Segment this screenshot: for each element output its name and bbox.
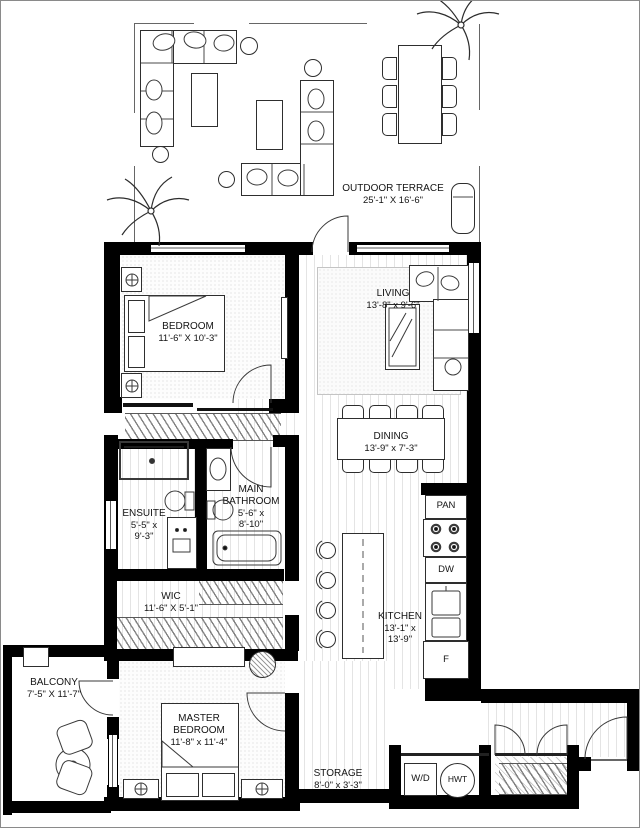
room-name: LIVING: [351, 288, 435, 300]
living-sofa: [433, 299, 469, 391]
wall: [104, 569, 284, 581]
room-label-balcony: BALCONY 7'-5" X 11'-7": [7, 677, 101, 700]
wall: [273, 435, 299, 447]
dining-chair: [396, 459, 418, 473]
outdoor-chair: [382, 57, 397, 80]
room-name: BALCONY: [7, 677, 101, 689]
terrace-coffee-table: [191, 73, 218, 127]
closet-sliding-door: [123, 403, 193, 407]
wall: [285, 447, 299, 581]
palm-plant: [107, 177, 189, 246]
nightstand: [121, 267, 142, 292]
dining-chair: [369, 405, 391, 419]
window-master-bedroom: [108, 735, 118, 787]
terrace-boundary-line: [134, 23, 194, 24]
room-dims: 8'-0" x 3'-3": [287, 780, 389, 791]
terrace-boundary-line: [134, 166, 135, 242]
closet-hangers: [125, 413, 281, 441]
terrace-sectional-sofa: [140, 30, 174, 147]
terrace-planter: [240, 37, 258, 55]
room-label-living: LIVING 13'-8" x 9'-6": [351, 288, 435, 311]
outdoor-dining-table: [398, 45, 442, 144]
entry-door-sill: [591, 759, 627, 761]
outdoor-chair: [442, 113, 457, 136]
coat-closet-hangers: [499, 763, 567, 795]
hot-water-tank-label: HWT: [440, 774, 475, 784]
wall: [104, 397, 122, 413]
room-label-ensuite: ENSUITE 5'-5" x 9'-3": [110, 508, 178, 542]
closet-sliding-door: [197, 408, 273, 411]
bar-stool: [319, 602, 336, 619]
dining-chair: [396, 405, 418, 419]
room-name: DINING: [339, 431, 443, 443]
balcony-furniture: [55, 718, 94, 796]
closet-front-line: [495, 753, 567, 756]
wall: [107, 661, 119, 679]
terrace-boundary-line: [479, 24, 480, 110]
outdoor-chair: [442, 57, 457, 80]
ceiling-fan: [249, 651, 276, 678]
room-dims: 5'-5" x 9'-3": [122, 520, 166, 542]
terrace-boundary-line: [249, 23, 367, 24]
wall: [421, 483, 467, 495]
lounge-chair: [451, 183, 475, 234]
pantry-label: PAN: [425, 500, 467, 511]
room-dims: 11'-6" X 10'-3": [135, 333, 241, 344]
bar-stool: [319, 572, 336, 589]
room-name: KITCHEN: [367, 611, 433, 623]
nightstand: [241, 779, 283, 799]
wall: [389, 795, 579, 809]
window-living: [357, 244, 449, 253]
dining-chair: [369, 459, 391, 473]
room-dims: 13'-1" x 13'-9": [377, 623, 423, 645]
terrace-boundary-line: [134, 23, 135, 113]
room-dims: 11'-6" X 5'-1": [119, 603, 223, 614]
wall: [481, 689, 629, 703]
closet-front-line: [401, 753, 489, 756]
window-living-side: [468, 263, 480, 333]
wall: [269, 399, 299, 413]
dishwasher-label: DW: [425, 564, 467, 575]
outdoor-chair: [382, 113, 397, 136]
room-name: MAIN BATHROOM: [217, 484, 285, 508]
nightstand: [121, 373, 142, 398]
room-dims: 13'-9" x 7'-3": [339, 443, 443, 454]
room-dims: 5'-6" x 8'-10": [228, 508, 274, 530]
room-name: STORAGE: [287, 768, 389, 780]
dining-chair: [342, 459, 364, 473]
room-label-storage: STORAGE 8'-0" x 3'-3": [287, 768, 389, 791]
terrace-coffee-table-2: [256, 100, 283, 150]
bar-stool: [319, 542, 336, 559]
stove: [423, 519, 467, 557]
balcony-planter-box: [23, 647, 49, 667]
wall: [3, 801, 111, 813]
wall: [285, 615, 299, 651]
wall: [577, 757, 591, 771]
terrace-boundary-line: [479, 166, 480, 242]
living-coffee-table: [385, 304, 420, 370]
room-label-wic: WIC 11'-6" X 5'-1": [119, 591, 223, 614]
room-label-bedroom: BEDROOM 11'-6" X 10'-3": [135, 321, 241, 344]
dining-chair: [422, 405, 444, 419]
outdoor-chair: [442, 85, 457, 108]
wall: [3, 645, 12, 815]
window-bedroom: [151, 244, 245, 253]
room-label-master-bedroom: MASTER BEDROOM 11'-8" x 11'-4": [143, 713, 255, 748]
room-label-terrace: OUTDOOR TERRACE 25'-1" X 16'-6": [333, 183, 453, 206]
floor-plan: OUTDOOR TERRACE 25'-1" X 16'-6" BEDROOM …: [0, 0, 640, 828]
nightstand: [123, 779, 159, 799]
dining-chair: [342, 405, 364, 419]
dresser: [173, 647, 245, 667]
wall: [425, 679, 481, 701]
room-dims: 13'-8" x 9'-6": [351, 300, 435, 311]
wall: [627, 689, 640, 771]
tv-console: [281, 297, 288, 359]
fridge-label: F: [423, 654, 469, 665]
dining-chair: [422, 459, 444, 473]
plank-floor-corridor: [481, 703, 627, 757]
wall: [104, 573, 117, 651]
pillow: [202, 773, 235, 797]
room-name: MASTER BEDROOM: [164, 713, 234, 737]
room-dims: 25'-1" X 16'-6": [333, 195, 453, 206]
wic-hangers-bottom: [117, 617, 283, 651]
room-name: OUTDOOR TERRACE: [333, 183, 453, 195]
room-name: WIC: [119, 591, 223, 603]
wall: [297, 789, 391, 803]
outdoor-chair: [382, 85, 397, 108]
bar-stool: [319, 631, 336, 648]
terrace-planter: [304, 59, 322, 77]
room-dims: 7'-5" X 11'-7": [7, 689, 101, 700]
terrace-planter: [152, 146, 169, 163]
wall: [104, 242, 120, 402]
room-label-dining: DINING 13'-9" x 7'-3": [339, 431, 443, 454]
washer-dryer-label: W/D: [404, 773, 437, 784]
pillow: [166, 773, 199, 797]
room-dims: 11'-8" x 11'-4": [143, 737, 255, 748]
room-name: BEDROOM: [135, 321, 241, 333]
room-name: ENSUITE: [110, 508, 178, 520]
terrace-sectional-sofa-2: [300, 80, 334, 196]
room-label-main-bathroom: MAIN BATHROOM 5'-6" x 8'-10": [217, 484, 285, 530]
terrace-planter: [218, 171, 235, 188]
wall: [3, 645, 111, 657]
room-label-kitchen: KITCHEN 13'-1" x 13'-9": [367, 611, 433, 645]
